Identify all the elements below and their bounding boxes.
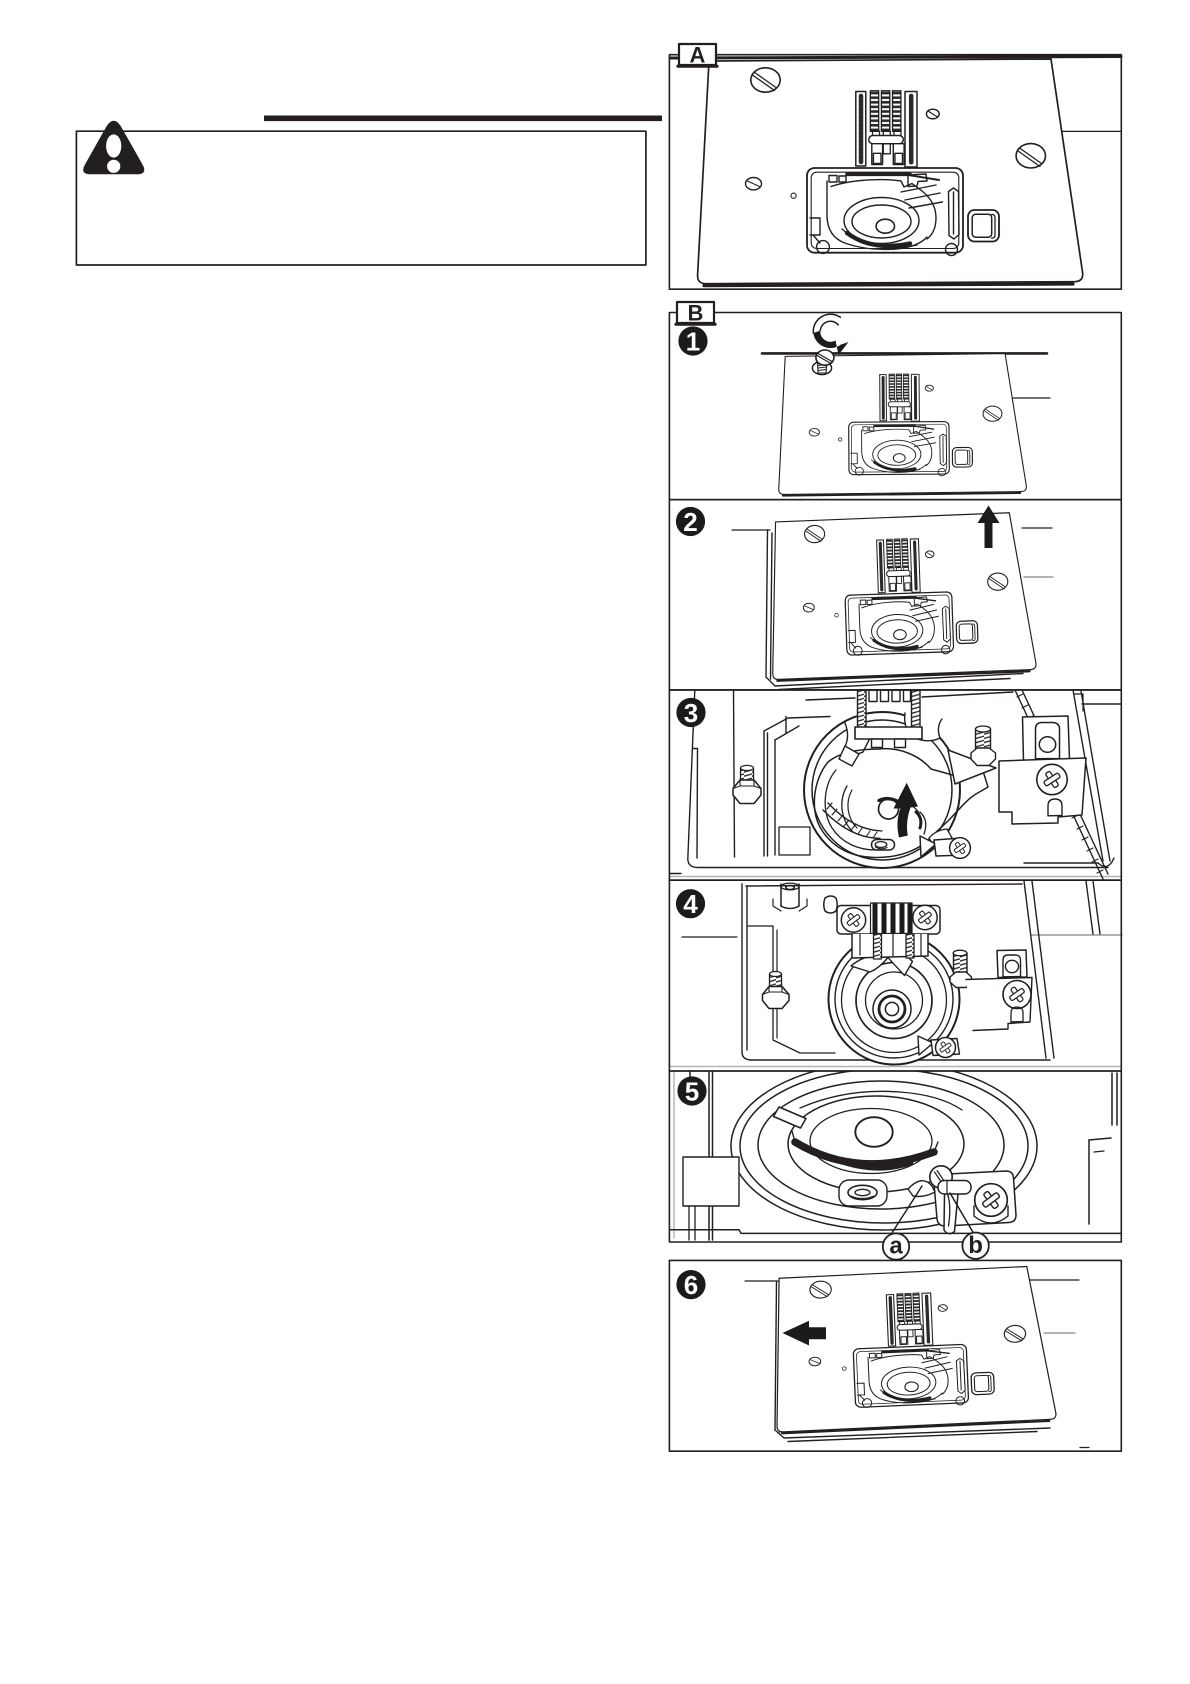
svg-text:3: 3 <box>684 698 698 728</box>
svg-text:1: 1 <box>686 326 700 356</box>
svg-text:a: a <box>889 1233 903 1260</box>
svg-text:5: 5 <box>685 1076 699 1106</box>
svg-text:2: 2 <box>683 507 697 537</box>
svg-text:A: A <box>690 43 706 68</box>
svg-text:b: b <box>968 1232 983 1259</box>
svg-text:B: B <box>688 301 704 326</box>
svg-text:6: 6 <box>684 1270 698 1300</box>
svg-text:4: 4 <box>683 889 698 919</box>
